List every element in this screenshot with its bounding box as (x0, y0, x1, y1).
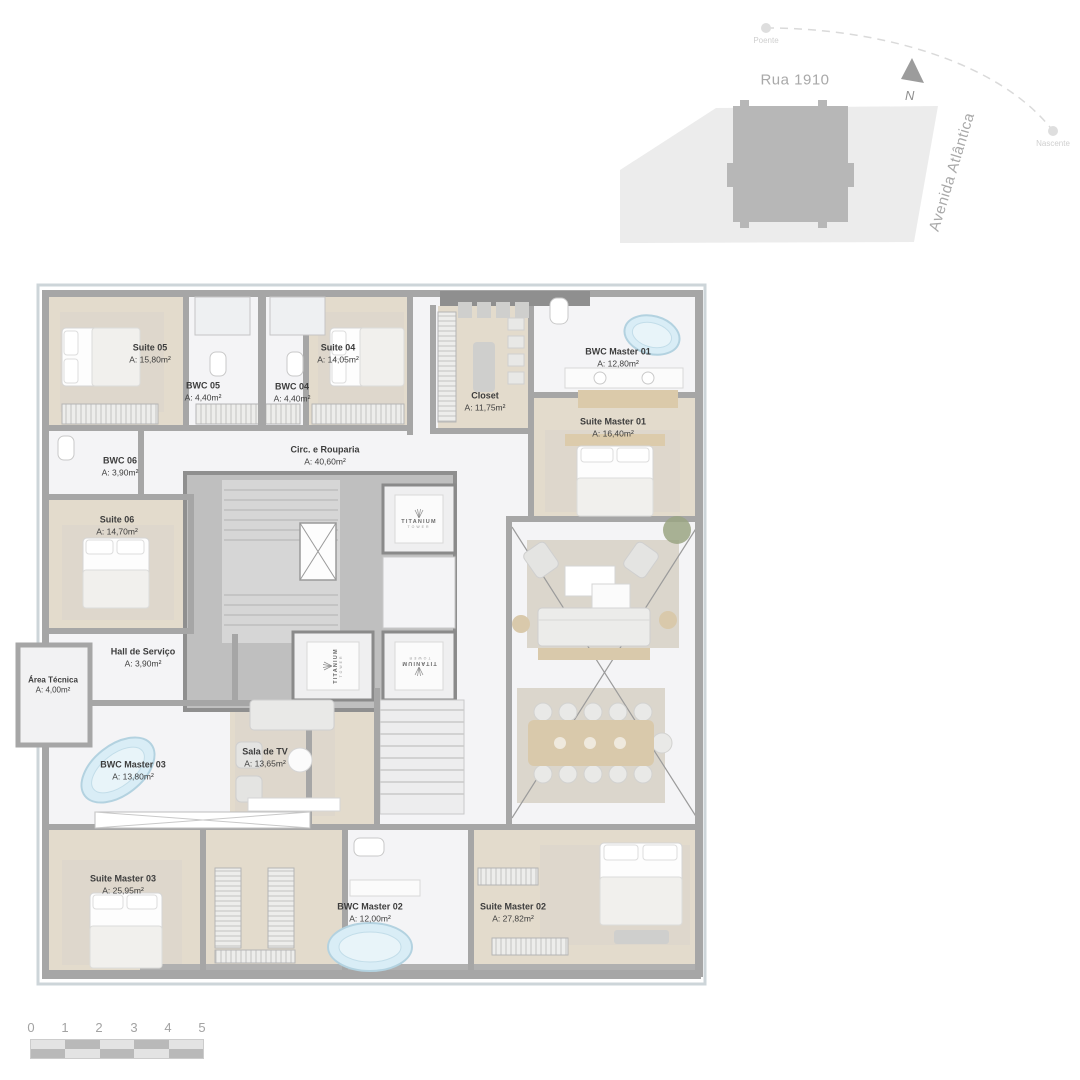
toilet (210, 352, 226, 376)
scale-bar-segments (30, 1039, 204, 1059)
bed-bench (614, 930, 669, 944)
closet-island (473, 342, 495, 392)
double-vanity (565, 368, 683, 388)
toilet (354, 838, 384, 856)
room-label-suite-04: Suite 04A: 14,05m² (317, 343, 359, 366)
room-label-bwc-04: BWC 04A: 4,40m² (274, 382, 311, 405)
room-label-suite-master-03: Suite Master 03A: 25,95m² (90, 874, 156, 897)
round-table (288, 748, 312, 772)
internal-stairs (380, 700, 464, 814)
toilet (287, 352, 303, 376)
room-label-suite-06: Suite 06A: 14,70m² (96, 515, 138, 538)
site-map (620, 23, 1058, 243)
shower (195, 297, 250, 335)
side-table (659, 611, 677, 629)
north-arrow-icon (901, 58, 924, 83)
toilet (550, 298, 568, 324)
room-label-area-tecnica: Área TécnicaA: 4,00m² (28, 676, 78, 697)
titanium-logo: TITANIUM TOWER (392, 509, 446, 529)
room-label-suite-05: Suite 05A: 15,80m² (129, 343, 171, 366)
room-label-bwc-06: BWC 06A: 3,90m² (102, 456, 139, 479)
titanium-logo: TITANIUM TOWER (392, 656, 446, 676)
bed-suite-master-01 (565, 434, 665, 516)
windows (95, 812, 310, 828)
sun-label-nascente: Nascente (1036, 139, 1070, 148)
street-label-rua-1910: Rua 1910 (760, 72, 829, 89)
dining-set (528, 703, 672, 783)
site-building-footprint (733, 106, 848, 222)
floor-plan-page: Rua 1910 Avenida Atlântica Poente Nascen… (0, 0, 1080, 1080)
room-label-bwc-master-01: BWC Master 01A: 12,80m² (585, 347, 651, 370)
room-label-hall-servico: Hall de ServiçoA: 3,90m² (111, 647, 176, 670)
tv-console (248, 798, 340, 811)
titanium-fan-icon (323, 660, 332, 672)
bed-suite-master-03 (90, 893, 162, 968)
scale-bar-ticks: 0 1 2 3 4 5 (28, 1020, 204, 1038)
room-label-suite-master-01: Suite Master 01A: 16,40m² (580, 417, 646, 440)
room-label-bwc-master-03: BWC Master 03A: 13,80m² (100, 760, 166, 783)
vanity-counter (578, 390, 678, 408)
sun-label-poente: Poente (753, 36, 778, 45)
titanium-fan-icon (413, 667, 425, 676)
titanium-logo: TITANIUM TOWER (323, 639, 343, 693)
bathtub-master-02 (328, 923, 412, 971)
sun-east-dot (1048, 126, 1058, 136)
toilet (58, 436, 74, 460)
side-table (512, 615, 530, 633)
room-label-bwc-05: BWC 05A: 4,40m² (185, 381, 222, 404)
vanity (350, 880, 420, 896)
sofa-console (538, 648, 650, 660)
room-label-suite-master-02: Suite Master 02A: 27,82m² (480, 902, 546, 925)
north-label: N (905, 88, 914, 103)
room-label-circ-rouparia: Circ. e RoupariaA: 40,60m² (290, 445, 359, 468)
room-label-closet: ClosetA: 11,75m² (465, 391, 506, 414)
bed-suite-06 (83, 538, 149, 608)
scale-bar: 0 1 2 3 4 5 (28, 1020, 204, 1062)
sun-west-dot (761, 23, 771, 33)
room-label-bwc-master-02: BWC Master 02A: 12,00m² (337, 902, 403, 925)
tv-sofa (250, 700, 334, 730)
room-label-sala-tv: Sala de TVA: 13,65m² (242, 747, 288, 770)
titanium-fan-icon (413, 509, 425, 518)
plant (663, 516, 691, 544)
shower (270, 297, 325, 335)
